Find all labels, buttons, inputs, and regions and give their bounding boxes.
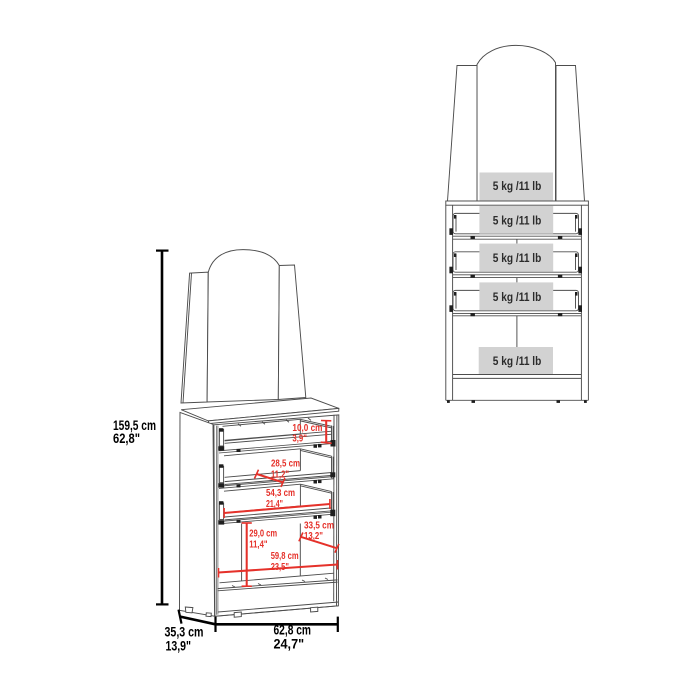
svg-text:11,4": 11,4" [249, 538, 267, 550]
svg-text:13,9": 13,9" [166, 638, 192, 654]
svg-text:5 kg /11 lb: 5 kg /11 lb [493, 290, 542, 304]
svg-text:24,7": 24,7" [274, 636, 305, 652]
svg-text:5 kg /11 lb: 5 kg /11 lb [493, 251, 542, 265]
svg-text:23,5": 23,5" [271, 561, 289, 573]
svg-text:5 kg /11 lb: 5 kg /11 lb [493, 354, 542, 368]
svg-text:13,2": 13,2" [304, 530, 323, 542]
svg-text:5 kg /11 lb: 5 kg /11 lb [493, 214, 542, 228]
svg-text:11,2": 11,2" [271, 468, 289, 480]
svg-text:5 kg /11 lb: 5 kg /11 lb [493, 179, 542, 193]
svg-text:3,9": 3,9" [292, 432, 307, 444]
svg-text:21,4": 21,4" [266, 498, 283, 510]
svg-text:62,8": 62,8" [113, 430, 140, 446]
